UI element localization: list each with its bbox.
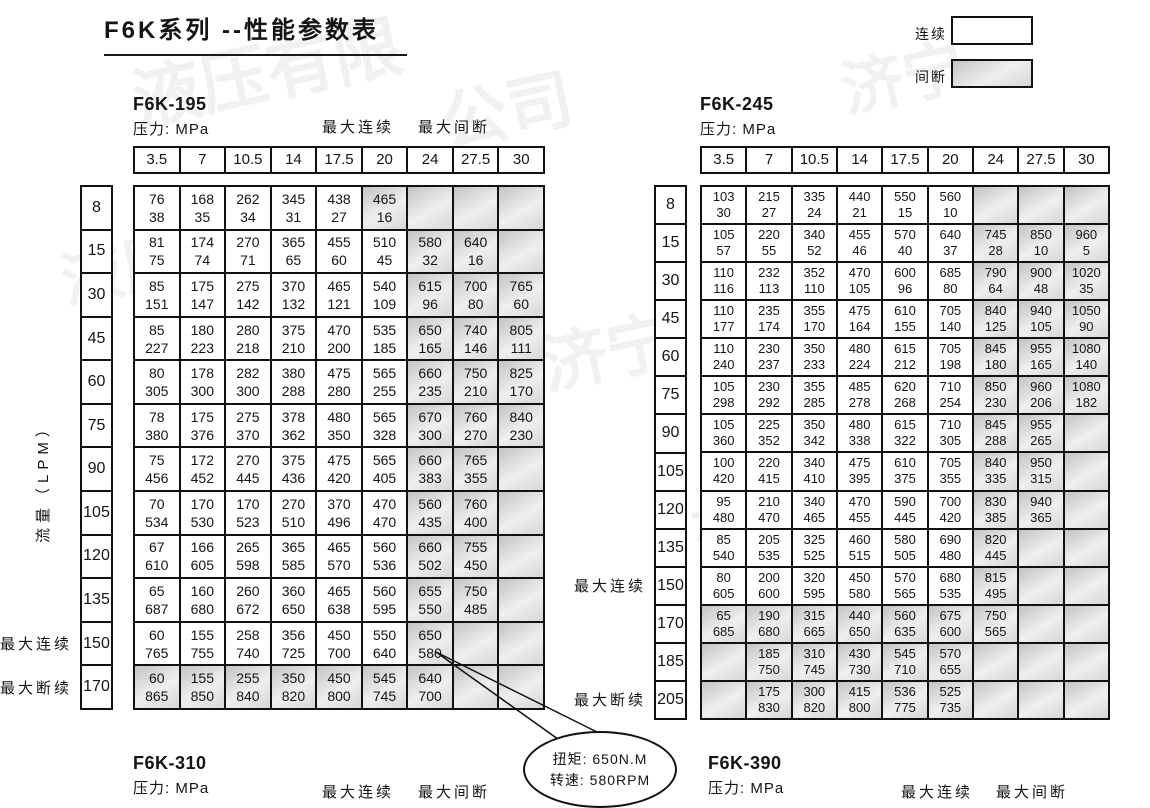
data-cell: 480350	[317, 405, 361, 447]
data-cell: 33524	[793, 187, 836, 223]
data-cell: 525735	[929, 682, 972, 718]
data-cell: 10557	[702, 225, 745, 261]
torque-value: 620	[894, 379, 916, 395]
data-cell	[499, 579, 543, 621]
torque-value: 175	[758, 684, 780, 700]
data-cell: 80605	[702, 568, 745, 604]
torque-value: 70	[149, 495, 165, 513]
flow-row-header: 15	[82, 231, 111, 273]
torque-value: 365	[282, 233, 305, 251]
pressure-col-header: 20	[929, 148, 972, 172]
speed-value: 292	[758, 395, 780, 411]
pressure-col-header: 24	[974, 148, 1017, 172]
speed-value: 46	[852, 243, 866, 259]
torque-value: 1050	[1072, 303, 1101, 319]
data-cell: 166605	[181, 536, 225, 578]
speed-value: 305	[939, 433, 961, 449]
pressure-col-header: 10.5	[226, 148, 270, 172]
speed-value: 300	[418, 426, 441, 444]
speed-value: 233	[803, 357, 825, 373]
torque-value: 75	[149, 451, 165, 469]
torque-value: 1080	[1072, 379, 1101, 395]
data-cell: 940105	[1019, 301, 1062, 337]
flow-row-header: 45	[656, 301, 685, 337]
torque-value: 455	[327, 233, 350, 251]
data-cell: 110116	[702, 263, 745, 299]
speed-value: 270	[464, 426, 487, 444]
data-cell: 75456	[135, 448, 179, 490]
speed-value: 455	[849, 510, 871, 526]
speed-value: 445	[236, 469, 259, 487]
data-cell: 102035	[1065, 263, 1108, 299]
footer-table-name: F6K-390	[708, 753, 782, 774]
torque-value: 450	[327, 626, 350, 644]
torque-value: 475	[849, 455, 871, 471]
torque-value: 640	[418, 669, 441, 687]
torque-value: 282	[236, 364, 259, 382]
data-cell: 110240	[702, 339, 745, 375]
speed-value: 10	[1034, 243, 1048, 259]
speed-value: 227	[145, 339, 168, 357]
speed-value: 650	[282, 600, 305, 618]
speed-value: 672	[236, 600, 259, 618]
flow-row-header: 15	[656, 225, 685, 261]
torque-value: 370	[327, 495, 350, 513]
speed-value: 687	[145, 600, 168, 618]
torque-value: 615	[894, 417, 916, 433]
data-cell: 160680	[181, 579, 225, 621]
speed-value: 113	[759, 281, 780, 297]
speed-value: 420	[327, 469, 350, 487]
data-cell: 60765	[135, 623, 179, 665]
data-cell	[499, 623, 543, 665]
speed-value: 177	[713, 319, 735, 335]
data-cell: 64037	[929, 225, 972, 261]
data-cell	[499, 492, 543, 534]
speed-value: 27	[762, 205, 776, 221]
data-cell	[1065, 530, 1108, 566]
speed-value: 342	[803, 433, 825, 449]
data-cell: 440650	[838, 606, 881, 642]
data-cell	[1065, 187, 1108, 223]
torque-value: 170	[236, 495, 259, 513]
torque-value: 610	[894, 455, 916, 471]
speed-value: 600	[939, 624, 961, 640]
torque-value: 565	[373, 451, 396, 469]
torque-value: 480	[849, 341, 871, 357]
torque-value: 670	[418, 408, 441, 426]
torque-value: 270	[236, 233, 259, 251]
speed-value: 298	[713, 395, 735, 411]
data-cell	[702, 682, 745, 718]
speed-value: 452	[191, 469, 214, 487]
data-cell: 560595	[363, 579, 407, 621]
speed-value: 96	[898, 281, 912, 297]
data-cell: 26234	[226, 187, 270, 229]
torque-value: 850	[985, 379, 1007, 395]
speed-value: 740	[236, 644, 259, 662]
speed-value: 638	[327, 600, 350, 618]
data-cell: 540109	[363, 274, 407, 316]
data-cell: 60096	[883, 263, 926, 299]
data-cell: 232113	[747, 263, 790, 299]
torque-value: 315	[803, 608, 825, 624]
torque-value: 270	[236, 451, 259, 469]
torque-value: 215	[758, 189, 780, 205]
torque-value: 840	[985, 455, 1007, 471]
data-cell: 840230	[499, 405, 543, 447]
torque-value: 900	[1030, 265, 1052, 281]
speed-value: 515	[849, 548, 871, 564]
speed-value: 48	[1034, 281, 1048, 297]
torque-value: 470	[373, 495, 396, 513]
torque-value: 470	[849, 494, 871, 510]
data-cell: 155755	[181, 623, 225, 665]
speed-value: 315	[1030, 471, 1052, 487]
data-cell: 1080140	[1065, 339, 1108, 375]
speed-value: 35	[1079, 281, 1093, 297]
data-cell: 755450	[454, 536, 498, 578]
speed-value: 15	[898, 205, 912, 221]
data-cell: 8175	[135, 231, 179, 273]
torque-value: 172	[191, 451, 214, 469]
data-cell: 570565	[883, 568, 926, 604]
torque-value: 570	[894, 227, 916, 243]
speed-value: 210	[282, 339, 305, 357]
torque-value: 550	[373, 626, 396, 644]
flow-row-header: 120	[656, 492, 685, 528]
data-cell: 70534	[135, 492, 179, 534]
torque-value: 760	[464, 408, 487, 426]
data-cell: 356725	[272, 623, 316, 665]
data-cell: 275142	[226, 274, 270, 316]
speed-value: 383	[418, 469, 441, 487]
speed-value: 198	[939, 357, 961, 373]
speed-value: 580	[418, 644, 441, 662]
speed-value: 16	[468, 251, 484, 269]
data-cell: 560536	[363, 536, 407, 578]
speed-value: 420	[713, 471, 735, 487]
torque-value: 355	[803, 379, 825, 395]
data-cell: 110177	[702, 301, 745, 337]
data-cell: 565255	[363, 361, 407, 403]
speed-value: 700	[418, 687, 441, 705]
data-cell: 235174	[747, 301, 790, 337]
data-cell: 58032	[408, 231, 452, 273]
torque-value: 340	[803, 494, 825, 510]
data-cell	[974, 682, 1017, 718]
torque-value: 615	[894, 341, 916, 357]
speed-value: 111	[511, 339, 532, 357]
data-cell: 36565	[272, 231, 316, 273]
data-cell: 255840	[226, 666, 270, 708]
data-cell: 475164	[838, 301, 881, 337]
data-cell	[1065, 453, 1108, 489]
pressure-col-header: 14	[838, 148, 881, 172]
data-cell	[702, 644, 745, 680]
torque-value: 650	[418, 321, 441, 339]
speed-value: 38	[149, 208, 165, 226]
callout-torque: 扭矩: 650N.M	[553, 749, 648, 770]
torque-value: 545	[894, 646, 916, 662]
torque-value: 750	[985, 608, 1007, 624]
data-cell	[1065, 568, 1108, 604]
torque-value: 340	[803, 455, 825, 471]
flow-column: 8153045607590105120135最大连续150最大断续170	[80, 185, 113, 710]
speed-value: 55	[762, 243, 776, 259]
speed-value: 840	[236, 687, 259, 705]
torque-value: 465	[327, 277, 350, 295]
speed-value: 400	[464, 513, 487, 531]
data-grid: 1033021527335244402155015560101055722055…	[700, 185, 1110, 720]
data-cell: 700420	[929, 492, 972, 528]
data-cell: 475280	[317, 361, 361, 403]
speed-value: 410	[803, 471, 825, 487]
speed-value: 32	[422, 251, 438, 269]
pressure-col-header: 27.5	[454, 148, 498, 172]
speed-value: 550	[418, 600, 441, 618]
speed-value: 105	[1030, 319, 1052, 335]
data-cell: 485278	[838, 377, 881, 413]
speed-value: 665	[803, 624, 825, 640]
torque-value: 262	[236, 190, 259, 208]
data-cell	[408, 187, 452, 229]
torque-value: 560	[939, 189, 961, 205]
torque-value: 470	[327, 321, 350, 339]
data-cell: 10330	[702, 187, 745, 223]
speed-value: 365	[1030, 510, 1052, 526]
speed-value: 75	[149, 251, 165, 269]
data-cell: 650165	[408, 318, 452, 360]
torque-value: 415	[849, 684, 871, 700]
footer-table-name: F6K-310	[133, 753, 207, 774]
speed-value: 725	[282, 644, 305, 662]
speed-value: 110	[804, 281, 825, 297]
torque-value: 590	[894, 494, 916, 510]
speed-value: 170	[803, 319, 825, 335]
torque-value: 230	[758, 379, 780, 395]
torque-value: 255	[236, 669, 259, 687]
data-cell: 64016	[454, 231, 498, 273]
data-cell: 74528	[974, 225, 1017, 261]
speed-value: 680	[191, 600, 214, 618]
data-cell: 34052	[793, 225, 836, 261]
torque-value: 580	[894, 532, 916, 548]
data-cell: 825170	[499, 361, 543, 403]
speed-value: 71	[240, 251, 256, 269]
speed-value: 155	[894, 319, 916, 335]
torque-value: 60	[149, 669, 165, 687]
speed-value: 5	[1083, 243, 1090, 259]
speed-value: 565	[894, 586, 916, 602]
speed-value: 480	[939, 548, 961, 564]
data-cell: 105090	[1065, 301, 1108, 337]
pressure-col-header: 30	[499, 148, 543, 172]
data-cell: 55015	[883, 187, 926, 223]
data-cell: 560635	[883, 606, 926, 642]
torque-value: 280	[236, 321, 259, 339]
data-cell	[1019, 568, 1062, 604]
speed-value: 10	[943, 205, 957, 221]
torque-value: 540	[373, 277, 396, 295]
speed-value: 151	[145, 295, 168, 313]
speed-value: 755	[191, 644, 214, 662]
speed-value: 350	[327, 426, 350, 444]
data-cell: 155850	[181, 666, 225, 708]
torque-value: 760	[464, 495, 487, 513]
data-cell	[974, 187, 1017, 223]
data-cell: 355285	[793, 377, 836, 413]
torque-value: 210	[758, 494, 780, 510]
torque-value: 200	[758, 570, 780, 586]
torque-value: 65	[716, 608, 730, 624]
data-cell: 740146	[454, 318, 498, 360]
speed-value: 142	[236, 295, 259, 313]
speed-value: 395	[849, 471, 871, 487]
speed-value: 147	[191, 295, 214, 313]
speed-value: 655	[939, 662, 961, 678]
data-cell: 27071	[226, 231, 270, 273]
flow-row-header: 60	[82, 361, 111, 403]
torque-value: 755	[464, 538, 487, 556]
speed-value: 37	[943, 243, 957, 259]
data-cell	[454, 187, 498, 229]
flow-row-header: 105	[82, 492, 111, 534]
data-cell: 705355	[929, 453, 972, 489]
pressure-col-header: 17.5	[883, 148, 926, 172]
torque-value: 750	[464, 364, 487, 382]
data-cell: 470200	[317, 318, 361, 360]
torque-value: 60	[149, 626, 165, 644]
data-cell: 65685	[702, 606, 745, 642]
pressure-col-header: 10.5	[793, 148, 836, 172]
torque-value: 174	[191, 233, 214, 251]
speed-value: 125	[985, 319, 1007, 335]
speed-value: 595	[373, 600, 396, 618]
speed-value: 435	[418, 513, 441, 531]
data-cell: 660235	[408, 361, 452, 403]
torque-value: 438	[327, 190, 350, 208]
torque-value: 235	[758, 303, 780, 319]
flow-row-header: 最大断续170	[82, 666, 111, 708]
torque-value: 570	[894, 570, 916, 586]
torque-value: 80	[149, 364, 165, 382]
speed-value: 436	[282, 469, 305, 487]
data-cell: 17474	[181, 231, 225, 273]
torque-value: 710	[939, 417, 961, 433]
data-cell: 230237	[747, 339, 790, 375]
data-cell: 70080	[454, 274, 498, 316]
speed-value: 255	[373, 382, 396, 400]
data-cell	[1019, 187, 1062, 223]
data-cell: 378362	[272, 405, 316, 447]
speed-value: 45	[377, 251, 393, 269]
torque-value: 750	[464, 582, 487, 600]
data-cell: 615322	[883, 415, 926, 451]
data-cell: 705140	[929, 301, 972, 337]
speed-value: 60	[513, 295, 529, 313]
speed-value: 376	[191, 426, 214, 444]
data-cell: 180223	[181, 318, 225, 360]
pressure-unit-label: 压力: MPa	[700, 118, 776, 139]
pressure-col-header: 14	[272, 148, 316, 172]
torque-value: 685	[939, 265, 961, 281]
data-cell: 550640	[363, 623, 407, 665]
torque-value: 220	[758, 455, 780, 471]
torque-value: 710	[939, 379, 961, 395]
data-cell: 270510	[272, 492, 316, 534]
data-cell: 460515	[838, 530, 881, 566]
speed-value: 210	[464, 382, 487, 400]
speed-value: 535	[758, 548, 780, 564]
speed-value: 685	[713, 624, 735, 640]
torque-value: 450	[327, 669, 350, 687]
speed-value: 60	[331, 251, 347, 269]
torque-value: 565	[373, 364, 396, 382]
speed-value: 850	[191, 687, 214, 705]
torque-value: 440	[849, 608, 871, 624]
torque-value: 105	[713, 227, 735, 243]
torque-value: 850	[1030, 227, 1052, 243]
torque-value: 560	[373, 538, 396, 556]
speed-value: 505	[894, 548, 916, 564]
torque-value: 265	[236, 538, 259, 556]
flow-row-header: 185	[656, 644, 685, 680]
flow-row-header: 最大连续150	[82, 623, 111, 665]
speed-value: 21	[852, 205, 866, 221]
data-cell: 640700	[408, 666, 452, 708]
torque-value: 845	[985, 341, 1007, 357]
data-cell: 805111	[499, 318, 543, 360]
torque-value: 85	[149, 277, 165, 295]
data-cell: 480338	[838, 415, 881, 451]
torque-value: 230	[758, 341, 780, 357]
speed-value: 465	[803, 510, 825, 526]
torque-value: 100	[713, 455, 735, 471]
speed-value: 420	[939, 510, 961, 526]
data-cell: 56010	[929, 187, 972, 223]
torque-value: 375	[282, 321, 305, 339]
torque-value: 765	[510, 277, 533, 295]
data-cell: 45546	[838, 225, 881, 261]
data-cell: 536775	[883, 682, 926, 718]
data-cell: 760400	[454, 492, 498, 534]
speed-value: 300	[236, 382, 259, 400]
torque-value: 650	[418, 626, 441, 644]
torque-value: 1020	[1072, 265, 1101, 281]
data-cell: 610375	[883, 453, 926, 489]
data-cell: 475395	[838, 453, 881, 489]
flow-row-header: 120	[82, 536, 111, 578]
speed-value: 485	[464, 600, 487, 618]
speed-value: 200	[327, 339, 350, 357]
speed-value: 362	[282, 426, 305, 444]
speed-value: 355	[939, 471, 961, 487]
data-cell	[1065, 682, 1108, 718]
speed-value: 865	[145, 687, 168, 705]
data-cell: 350233	[793, 339, 836, 375]
speed-value: 109	[373, 295, 396, 313]
data-cell: 660502	[408, 536, 452, 578]
torque-value: 110	[713, 265, 734, 281]
max-intermittent-label: 最大间断	[418, 116, 490, 137]
speed-value: 565	[985, 624, 1007, 640]
data-cell: 705198	[929, 339, 972, 375]
torque-value: 560	[894, 608, 916, 624]
speed-value: 445	[985, 548, 1007, 564]
speed-value: 640	[373, 644, 396, 662]
data-cell: 265598	[226, 536, 270, 578]
